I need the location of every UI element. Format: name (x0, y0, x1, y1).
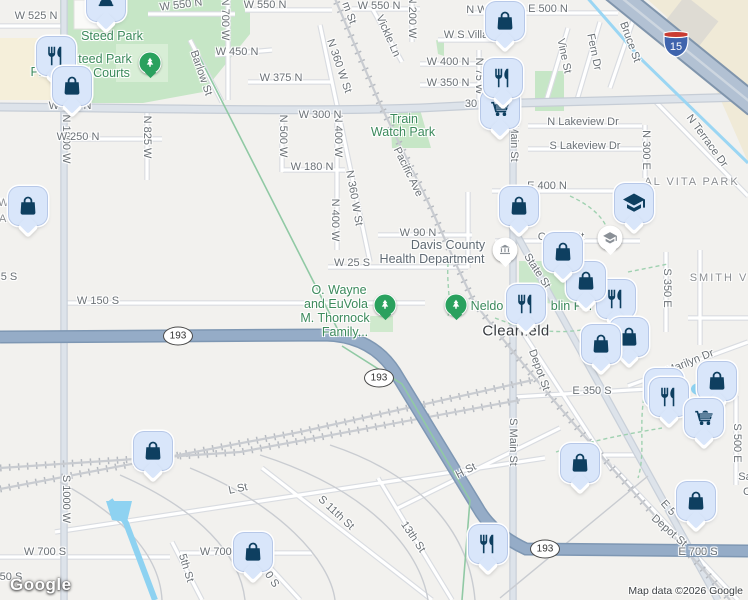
map-attribution: Map data ©2026 Google (628, 585, 743, 597)
poi-pin-restaurant-icon[interactable] (507, 285, 545, 323)
poi-pin-shopping-bag-icon[interactable] (698, 362, 736, 400)
poi-pin-shopping-bag-icon[interactable] (53, 67, 91, 105)
poi-pin-restaurant-icon[interactable] (650, 378, 688, 416)
poi-pin-shopping-bag-icon[interactable] (500, 187, 538, 225)
google-logo: Google (10, 575, 72, 595)
poi-pin-shopping-bag-icon[interactable] (486, 2, 524, 40)
poi-pin-restaurant-icon[interactable] (484, 59, 522, 97)
poi-pin-shopping-bag-icon[interactable] (582, 325, 620, 363)
poi-pin-shopping-cart-icon[interactable] (685, 399, 723, 437)
poi-pin-shopping-bag-icon[interactable] (9, 187, 47, 225)
poi-pin-shopping-bag-icon[interactable] (677, 482, 715, 520)
poi-pin-picnic-dome-icon[interactable] (87, 0, 125, 21)
map-canvas[interactable]: W 525 NW 550 NW 550 NW 550 NN 700 WN 200… (0, 0, 748, 600)
poi-pin-restaurant-icon[interactable] (469, 525, 507, 563)
poi-pin-school-icon[interactable] (615, 184, 653, 222)
poi-pin-shopping-bag-icon[interactable] (544, 233, 582, 271)
poi-pin-shopping-bag-icon[interactable] (134, 432, 172, 470)
poi-pin-shopping-bag-icon[interactable] (234, 533, 272, 571)
poi-pin-shopping-bag-icon[interactable] (561, 444, 599, 482)
map-pins-layer (0, 0, 748, 600)
